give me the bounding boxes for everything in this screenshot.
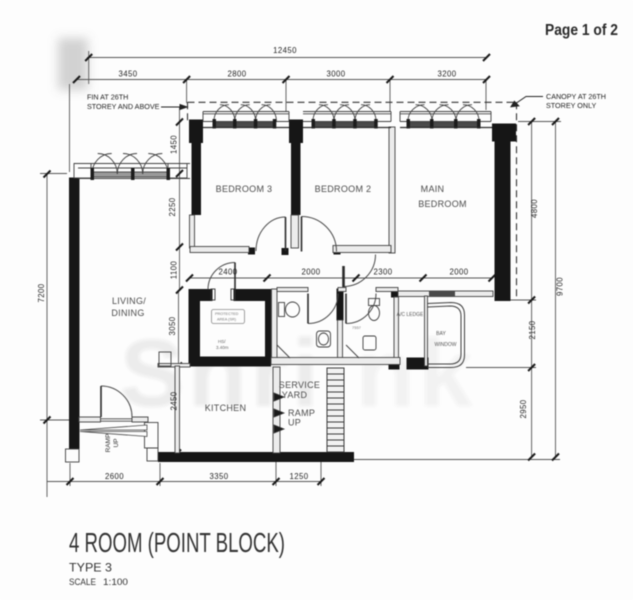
svg-text:2000: 2000: [450, 268, 469, 277]
svg-text:RAMP: RAMP: [288, 408, 315, 418]
svg-text:KITCHEN: KITCHEN: [205, 403, 247, 413]
svg-text:CANOPY AT 26TH: CANOPY AT 26TH: [546, 92, 606, 101]
svg-text:3.40m: 3.40m: [216, 345, 229, 350]
svg-text:3000: 3000: [327, 70, 346, 79]
svg-text:LIVING/: LIVING/: [112, 296, 146, 306]
svg-text:SCALE: SCALE: [69, 577, 96, 588]
svg-text:WINDOW: WINDOW: [435, 342, 457, 348]
svg-text:3050: 3050: [168, 316, 177, 335]
svg-text:1100: 1100: [170, 261, 179, 280]
svg-text:DINING: DINING: [111, 308, 144, 318]
svg-text:A/C LEDGE: A/C LEDGE: [397, 312, 424, 318]
svg-text:3200: 3200: [438, 70, 457, 79]
svg-text:2400: 2400: [219, 268, 238, 277]
svg-text:UP: UP: [288, 418, 301, 428]
svg-text:1250: 1250: [290, 472, 309, 481]
svg-text:1:100: 1:100: [103, 577, 128, 588]
svg-text:2950: 2950: [519, 399, 528, 418]
svg-text:BAY: BAY: [436, 331, 446, 337]
svg-text:7200: 7200: [37, 283, 46, 302]
svg-text:STOREY AND ABOVE: STOREY AND ABOVE: [87, 102, 160, 111]
svg-text:2150: 2150: [528, 320, 537, 339]
svg-text:3450: 3450: [119, 70, 138, 79]
svg-text:SERVICE: SERVICE: [279, 380, 320, 390]
svg-text:BEDROOM: BEDROOM: [418, 199, 467, 209]
svg-text:STOREY ONLY: STOREY ONLY: [546, 101, 597, 110]
svg-text:YARD: YARD: [282, 390, 308, 400]
svg-text:BEDROOM 2: BEDROOM 2: [315, 184, 372, 194]
svg-text:3350: 3350: [210, 472, 229, 481]
svg-text:FIN AT 26TH: FIN AT 26TH: [87, 93, 128, 102]
svg-text:2250: 2250: [168, 197, 177, 216]
svg-text:1450: 1450: [170, 135, 179, 154]
svg-text:7557: 7557: [352, 325, 362, 330]
svg-text:9700: 9700: [556, 277, 565, 296]
svg-text:2450: 2450: [170, 391, 179, 410]
svg-text:Page 1 of 2: Page 1 of 2: [545, 22, 618, 39]
svg-text:2300: 2300: [374, 268, 393, 277]
svg-text:BEDROOM 3: BEDROOM 3: [216, 184, 273, 194]
svg-text:2000: 2000: [302, 268, 321, 277]
svg-text:HS/: HS/: [218, 339, 226, 344]
svg-text:2600: 2600: [105, 472, 124, 481]
svg-text:AREA (SR): AREA (SR): [217, 318, 237, 322]
svg-text:4 ROOM (POINT BLOCK): 4 ROOM (POINT BLOCK): [69, 527, 285, 558]
svg-text:12450: 12450: [273, 46, 297, 55]
svg-text:2800: 2800: [228, 70, 247, 79]
svg-text:MAIN: MAIN: [421, 184, 445, 194]
svg-text:TYPE 3: TYPE 3: [69, 561, 112, 575]
svg-text:RAMP: RAMP: [105, 434, 112, 453]
svg-text:4800: 4800: [530, 199, 539, 218]
svg-text:PROTECTED: PROTECTED: [215, 312, 239, 316]
svg-text:UP: UP: [113, 438, 120, 447]
